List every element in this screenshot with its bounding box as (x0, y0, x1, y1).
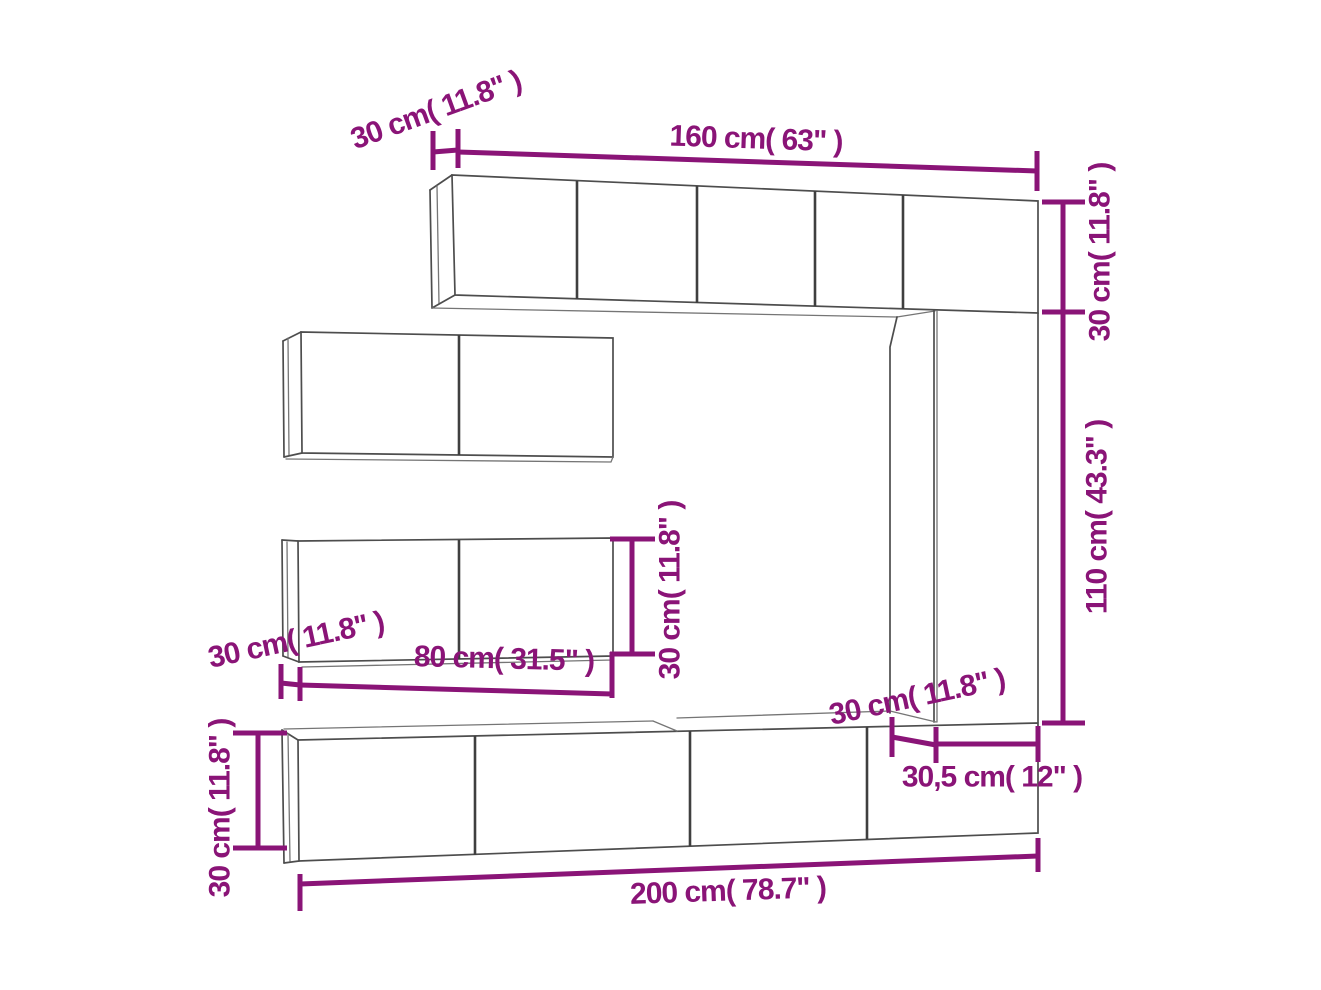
dim-label-middle-cabinet-width: 80 cm( 31.5" ) (413, 640, 594, 678)
dim-label-top-width: 160 cm( 63" ) (669, 119, 843, 158)
right-column-cabinet-drawing (890, 311, 1038, 722)
dimension-middle-cabinet-height: 30 cm( 11.8" ) (610, 501, 687, 680)
diagram-page: 30 cm( 11.8" ) 160 cm( 63" ) 30 cm( 11.8… (0, 0, 1321, 990)
dim-label-middle-cabinet-depth: 30 cm( 11.8" ) (205, 605, 387, 674)
dimension-right-lower-height: 110 cm( 43.3" ) (1042, 312, 1114, 723)
dimension-right-upper-height: 30 cm( 11.8" ) (1042, 163, 1117, 342)
dim-label-column-front-width: 30,5 cm( 12" ) (902, 761, 1082, 794)
dim-label-column-side-depth: 30 cm( 11.8" ) (826, 662, 1008, 731)
dim-label-bottom-width: 200 cm( 78.7" ) (629, 871, 826, 911)
dim-label-right-lower-height: 110 cm( 43.3" ) (1081, 420, 1114, 614)
upper-middle-cabinet-drawing (283, 332, 613, 462)
dim-label-right-upper-height: 30 cm( 11.8" ) (1084, 163, 1117, 342)
dim-label-bottom-cabinet-height: 30 cm( 11.8" ) (204, 719, 237, 898)
dimension-bottom-cabinet-height: 30 cm( 11.8" ) (204, 719, 288, 898)
dim-label-top-left-depth: 30 cm( 11.8" ) (346, 64, 525, 156)
top-cabinet-drawing (430, 175, 1038, 317)
diagram-canvas: 30 cm( 11.8" ) 160 cm( 63" ) 30 cm( 11.8… (0, 0, 1321, 990)
dim-label-middle-cabinet-height: 30 cm( 11.8" ) (654, 501, 687, 680)
